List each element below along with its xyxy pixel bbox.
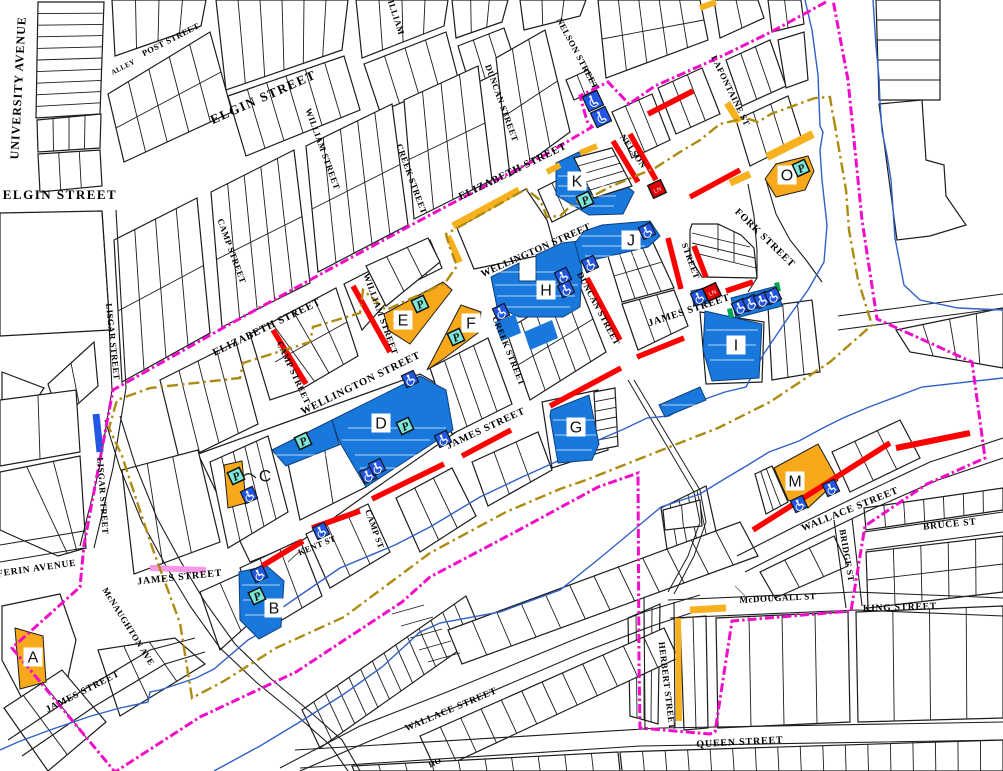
svg-text:H: H bbox=[540, 283, 552, 300]
svg-text:A: A bbox=[28, 650, 39, 667]
svg-text:ELGIN STREET: ELGIN STREET bbox=[3, 187, 117, 202]
svg-text:F: F bbox=[466, 316, 476, 333]
svg-text:D: D bbox=[375, 416, 387, 433]
svg-text:E: E bbox=[398, 313, 409, 330]
svg-text:J: J bbox=[627, 233, 635, 250]
svg-text:I: I bbox=[734, 338, 738, 355]
svg-text:B: B bbox=[269, 601, 280, 618]
svg-text:K: K bbox=[572, 174, 583, 191]
svg-text:M: M bbox=[788, 474, 801, 491]
svg-text:C: C bbox=[259, 467, 271, 486]
svg-text:G: G bbox=[570, 420, 582, 437]
svg-text:O: O bbox=[781, 168, 793, 185]
